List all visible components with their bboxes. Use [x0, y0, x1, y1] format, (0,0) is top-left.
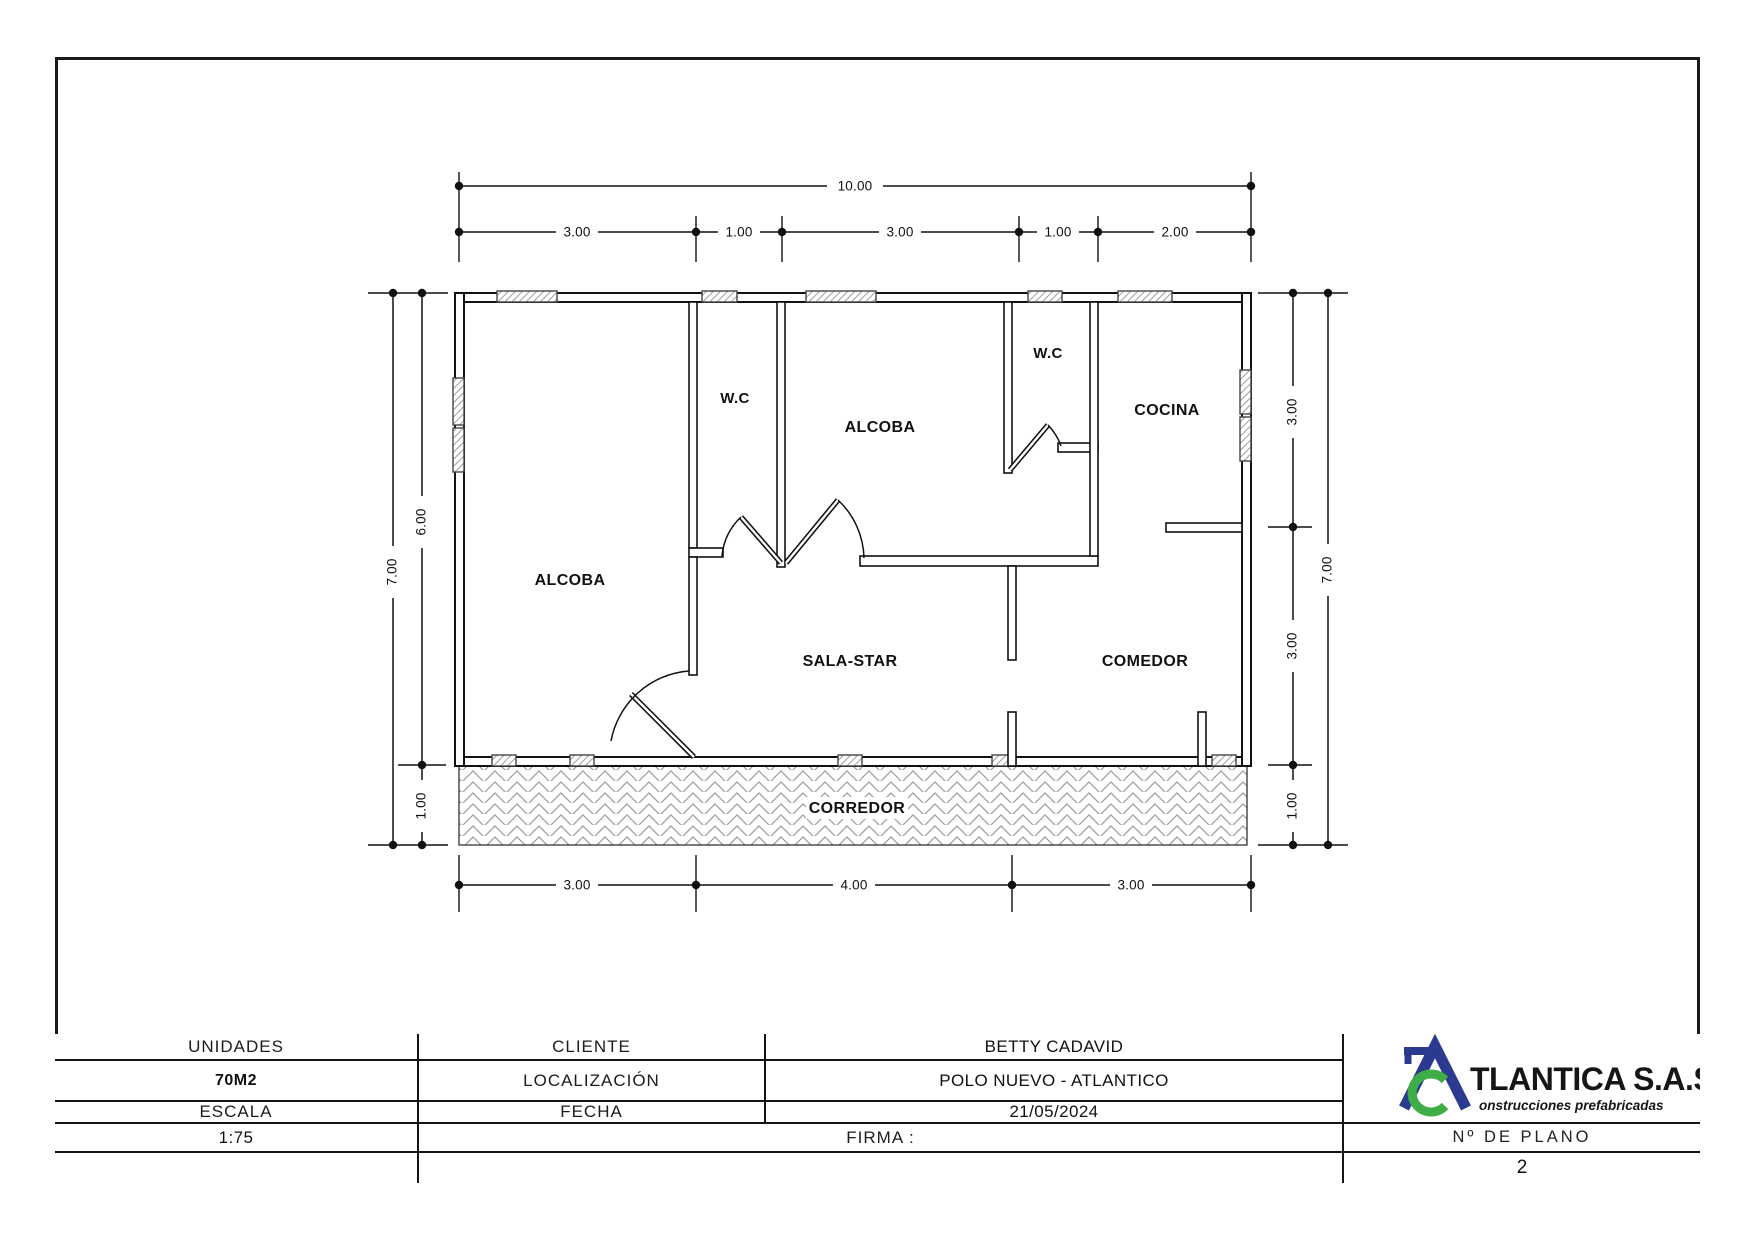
escala-value: 1:75 [219, 1128, 254, 1148]
firma-label: FIRMA : [846, 1128, 914, 1148]
cell-fecha-value: 21/05/2024 [766, 1102, 1344, 1124]
cell-escala-value: 1:75 [55, 1124, 419, 1153]
cell-cliente-value: BETTY CADAVID [766, 1034, 1344, 1061]
cell-escala-label: ESCALA [55, 1102, 419, 1124]
cell-plano-value: 2 [1344, 1153, 1700, 1183]
cell-localizacion-label: LOCALIZACIÓN [419, 1061, 766, 1102]
cell-plano-label: Nº DE PLANO [1344, 1124, 1700, 1153]
cell-firma: FIRMA : [419, 1124, 1344, 1153]
localizacion-label: LOCALIZACIÓN [523, 1071, 660, 1091]
cliente-label: CLIENTE [552, 1037, 631, 1057]
cell-localizacion-value: POLO NUEVO - ATLANTICO [766, 1061, 1344, 1102]
cell-unidades-value: 70M2 [55, 1061, 419, 1102]
fecha-value: 21/05/2024 [1009, 1102, 1098, 1122]
title-block: UNIDADES CLIENTE BETTY CADAVID 70M2 LOCA… [55, 1034, 1700, 1183]
unidades-label: UNIDADES [188, 1037, 284, 1057]
sheet-border [55, 57, 1700, 1183]
escala-label: ESCALA [199, 1102, 272, 1122]
atlantica-logo: TLANTICA S.A.S onstrucciones prefabricad… [1344, 1034, 1700, 1122]
plano-label: Nº DE PLANO [1453, 1128, 1592, 1147]
logo-main-text: TLANTICA S.A.S [1470, 1061, 1700, 1097]
cell-logo: TLANTICA S.A.S onstrucciones prefabricad… [1344, 1034, 1700, 1124]
floor-plan-sheet: ALCOBA W.C ALCOBA W.C COCINA SALA-STAR C… [0, 0, 1755, 1240]
cliente-value: BETTY CADAVID [985, 1037, 1124, 1057]
localizacion-value: POLO NUEVO - ATLANTICO [939, 1071, 1169, 1091]
unidades-value: 70M2 [215, 1072, 257, 1090]
cell-fecha-label: FECHA [419, 1102, 766, 1124]
cell-cliente-label: CLIENTE [419, 1034, 766, 1061]
cell-empty-2 [419, 1153, 1344, 1183]
cell-unidades-label: UNIDADES [55, 1034, 419, 1061]
logo-sub-text: onstrucciones prefabricadas [1479, 1098, 1664, 1113]
plano-value: 2 [1517, 1157, 1528, 1179]
fecha-label: FECHA [560, 1102, 623, 1122]
cell-empty-1 [55, 1153, 419, 1183]
